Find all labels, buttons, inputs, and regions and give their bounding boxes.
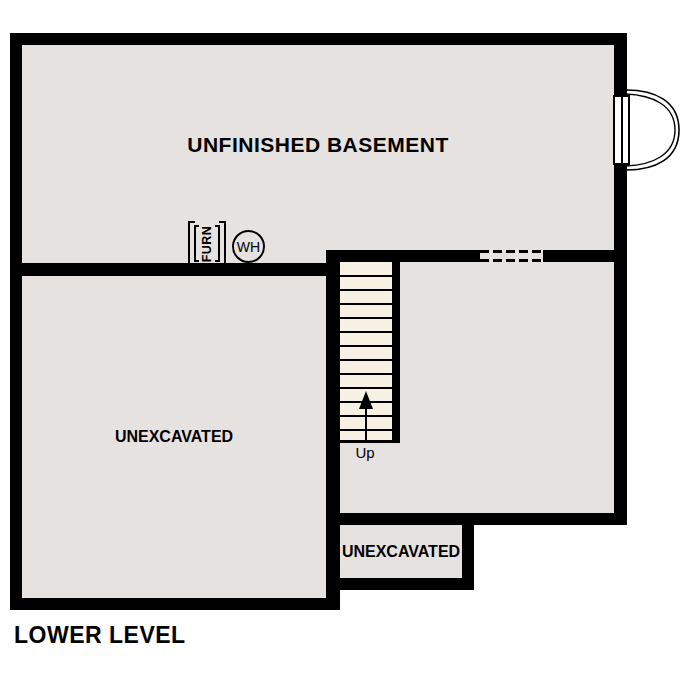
wall-stair-top	[326, 250, 627, 262]
floor-plan: UNFINISHED BASEMENT UNEXCAVATED UNEXCAVA…	[0, 0, 687, 687]
stair-tread	[340, 359, 392, 361]
furnace-label-wrap: FURN	[188, 221, 226, 266]
room-label-unexcavated-left: UNEXCAVATED	[115, 428, 233, 446]
stairs-up-label: Up	[348, 444, 382, 461]
stair-tread	[340, 331, 392, 333]
furnace-label: FURN	[200, 225, 214, 262]
wall-basement-unexcavated-sep	[10, 263, 340, 276]
wall-right-lower	[614, 165, 627, 525]
furnace-symbol: FURN	[188, 221, 226, 266]
wall-top	[10, 33, 627, 45]
stair-tread	[340, 275, 392, 277]
dashed-opening-top-edge	[480, 250, 543, 253]
water-heater-symbol: WH	[232, 230, 265, 263]
wall-stair-right	[392, 262, 400, 443]
up-arrow-shaft	[365, 406, 367, 442]
wall-left	[10, 33, 22, 610]
water-heater-label: WH	[237, 239, 260, 255]
room-label-unexcavated-bottom: UNEXCAVATED	[342, 543, 460, 561]
wall-rightroom-bottom	[326, 513, 627, 525]
wall-smallroom-bottom	[326, 578, 474, 590]
room-label-unfinished-basement: UNFINISHED BASEMENT	[22, 133, 614, 157]
wall-leftroom-right	[326, 250, 340, 610]
stair-tread	[340, 317, 392, 319]
window-mullion	[621, 97, 623, 163]
stair-tread	[340, 387, 392, 389]
window-icon	[613, 95, 630, 165]
stair-tread	[340, 345, 392, 347]
wall-leftroom-bottom	[10, 598, 340, 610]
room-unfinished-basement: UNFINISHED BASEMENT	[22, 45, 614, 264]
dashed-opening-bottom-edge	[480, 259, 543, 262]
stair-tread	[340, 373, 392, 375]
room-unexcavated-bottom: UNEXCAVATED	[340, 525, 462, 578]
plan-title: LOWER LEVEL	[14, 622, 186, 649]
stair-tread	[340, 289, 392, 291]
bow-window-curve	[625, 85, 685, 175]
up-arrow-icon	[359, 391, 373, 409]
dashed-wall-opening	[480, 250, 543, 262]
room-unexcavated-left: UNEXCAVATED	[22, 276, 326, 598]
stair-tread	[340, 303, 392, 305]
